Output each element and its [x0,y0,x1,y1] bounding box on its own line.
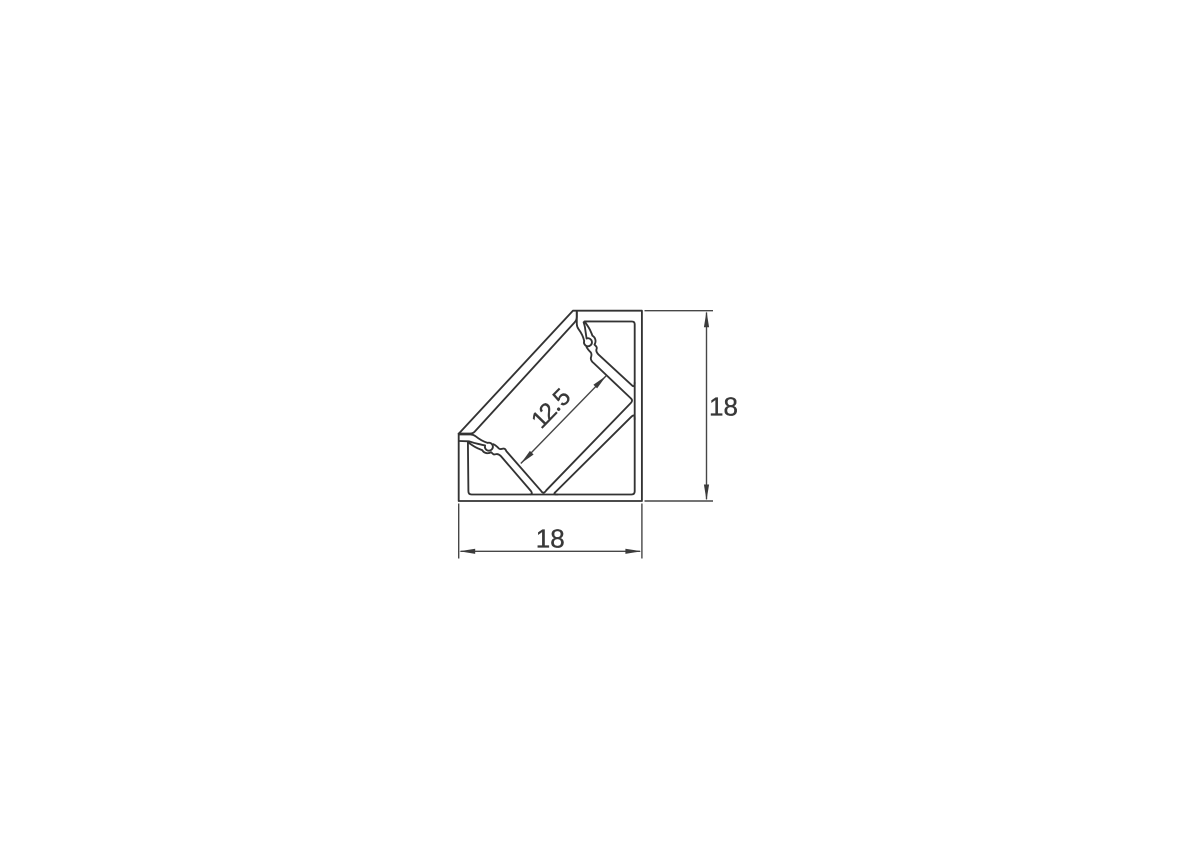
svg-text:18: 18 [536,523,565,553]
svg-text:18: 18 [709,391,738,421]
